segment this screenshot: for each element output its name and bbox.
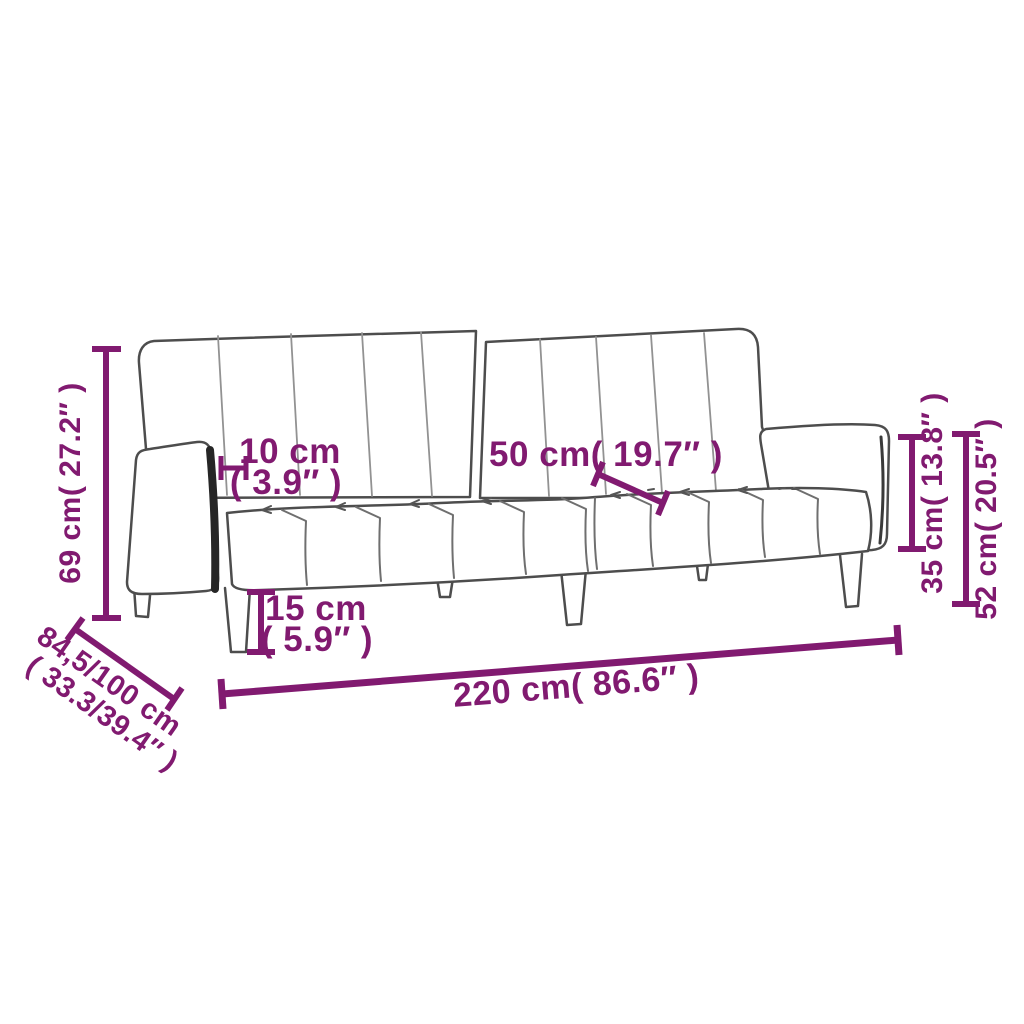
dimension-label-seat-height: 52 cm( 20.5″ ) (970, 418, 1003, 619)
sofa-leg-front-left (225, 588, 250, 652)
dimension-label-leg-height-inches: ( 5.9″ ) (261, 620, 373, 659)
dimension-armrest-height: 35 cm( 13.8″ ) (898, 392, 949, 593)
product-dimension-diagram: 69 cm( 27.2″ ) 10 cm ( 3.9″ ) 50 cm( 19.… (0, 0, 1024, 1024)
dimension-seat-height: 52 cm( 20.5″ ) (952, 418, 1003, 619)
dimension-total-height: 69 cm( 27.2″ ) (54, 349, 121, 618)
seat-tuft-dash (648, 489, 654, 490)
dimension-leg-height: 15 cm ( 5.9″ ) (247, 589, 373, 659)
seat-tuft-dash (779, 488, 785, 489)
dimension-cap (221, 679, 223, 709)
sofa-dimensions-illustration: 69 cm( 27.2″ ) 10 cm ( 3.9″ ) 50 cm( 19.… (0, 0, 1024, 1024)
dimension-label-total-height: 69 cm( 27.2″ ) (54, 382, 87, 583)
dimension-cap (897, 625, 899, 655)
sofa-leg-front-right (840, 554, 862, 607)
sofa-leg-front-middle (561, 569, 586, 625)
seat-base (227, 488, 871, 590)
dimension-label-seat-depth: 50 cm( 19.7″ ) (489, 435, 723, 474)
dimension-label-armrest-thickness-inches: ( 3.9″ ) (230, 463, 342, 502)
dimension-armrest-thickness: 10 cm ( 3.9″ ) (221, 432, 342, 502)
armrest-left (127, 442, 218, 594)
dimension-label-armrest-height: 35 cm( 13.8″ ) (916, 392, 949, 593)
dimension-total-depth: 84,5/100 cm ( 33.3/39.4″ ) (20, 618, 187, 778)
